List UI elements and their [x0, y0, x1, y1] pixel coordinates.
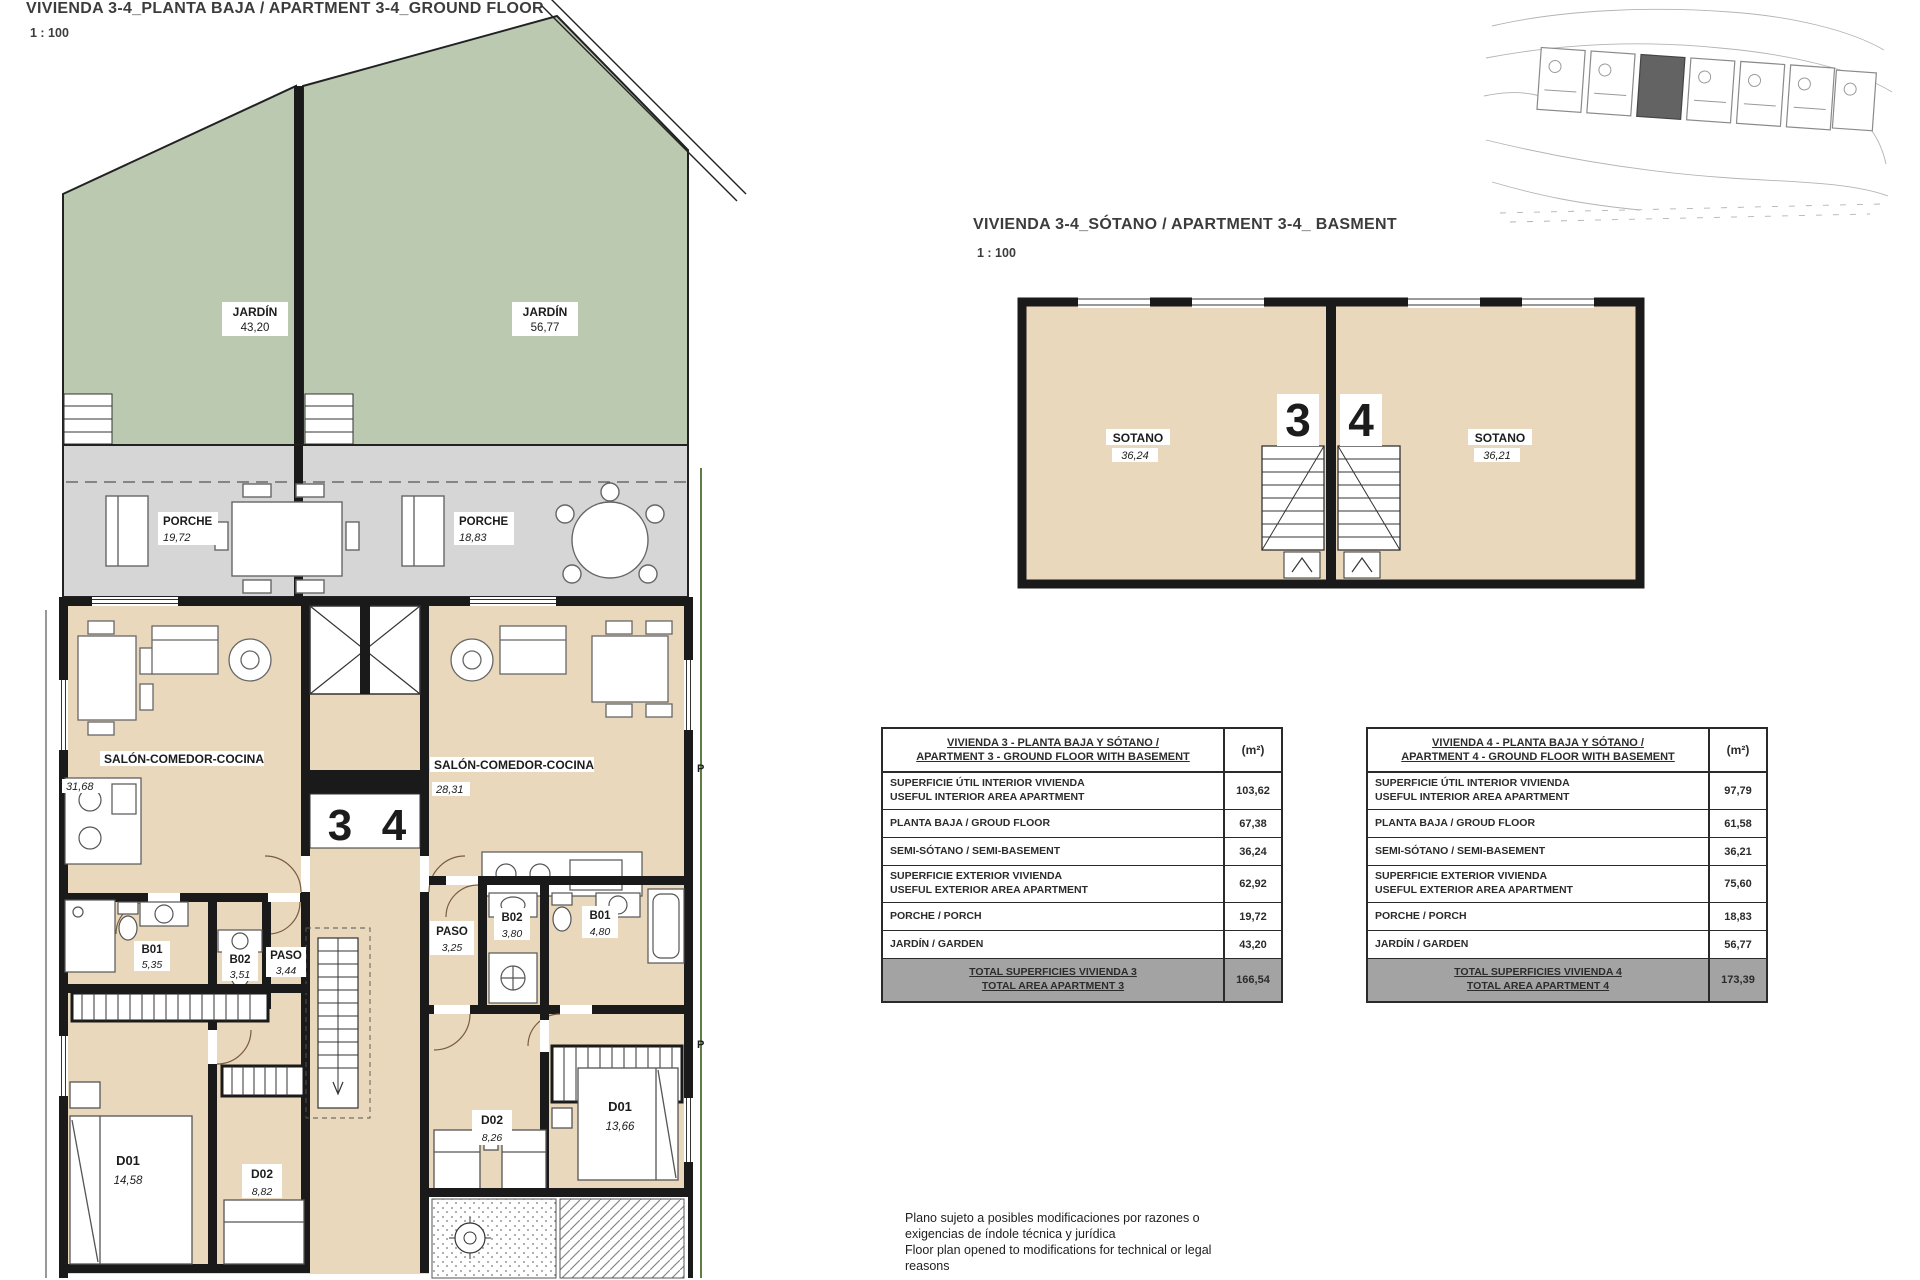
- table-row: JARDÍN / GARDEN 43,20: [883, 931, 1281, 959]
- basement-plan: 3 4 SOTANO 36,24 SOTANO 36,21: [1022, 296, 1640, 584]
- table-row: PLANTA BAJA / GROUD FLOOR 67,38: [883, 810, 1281, 838]
- table-row: JARDÍN / GARDEN 56,77: [1368, 931, 1766, 959]
- table-row: PORCHE / PORCH 19,72: [883, 903, 1281, 931]
- unit-number-4-ground: 4: [382, 801, 407, 850]
- room-area-b01-left: 5,35: [142, 959, 163, 971]
- area-table-apartment-4: VIVIENDA 4 - PLANTA BAJA Y SÓTANO / APAR…: [1366, 727, 1768, 1003]
- room-area-salon-right: 28,31: [435, 784, 464, 796]
- table4-unit-header: (m²): [1710, 729, 1766, 771]
- area-table-apartment-3: VIVIENDA 3 - PLANTA BAJA Y SÓTANO / APAR…: [881, 727, 1283, 1003]
- unit-number-3-ground: 3: [328, 801, 352, 850]
- table-row: SUPERFICIE ÚTIL INTERIOR VIVIENDAUSEFUL …: [883, 773, 1281, 810]
- table4-total-row: TOTAL SUPERFICIES VIVIENDA 4TOTAL AREA A…: [1368, 959, 1766, 1001]
- room-area-d02-left: 8,82: [252, 1186, 273, 1198]
- table4-title-line1: VIVIENDA 4 - PLANTA BAJA Y SÓTANO /: [1372, 736, 1704, 750]
- table4-title: VIVIENDA 4 - PLANTA BAJA Y SÓTANO / APAR…: [1368, 729, 1710, 771]
- room-area-b01-right: 4,80: [590, 926, 611, 938]
- room-area-b02-right: 3,80: [502, 928, 523, 940]
- room-area-porche-right: 18,83: [459, 532, 487, 544]
- table-row: SEMI-SÓTANO / SEMI-BASEMENT 36,24: [883, 838, 1281, 866]
- architectural-drawing: JARDÍN 43,20 JARDÍN 56,77: [0, 0, 1920, 1280]
- table-row: SEMI-SÓTANO / SEMI-BASEMENT 36,21: [1368, 838, 1766, 866]
- room-area-porche-left: 19,72: [163, 532, 191, 544]
- room-area-d01-left: 14,58: [114, 1175, 143, 1187]
- ground-floor-plan: JARDÍN 43,20 JARDÍN 56,77: [46, 0, 746, 1278]
- room-area-jardin-left: 43,20: [241, 322, 270, 334]
- unit-number-4-basement: 4: [1348, 394, 1374, 446]
- room-area-d02-right: 8,26: [482, 1132, 503, 1144]
- room-label-jardin-left: JARDÍN: [233, 304, 278, 319]
- room-label-paso-right: PASO: [436, 926, 468, 938]
- room-area-salon-left: 31,68: [66, 781, 94, 793]
- table-row: PLANTA BAJA / GROUD FLOOR 61,58: [1368, 810, 1766, 838]
- site-plan-minimap: [1484, 9, 1892, 222]
- room-label-porche-left: PORCHE: [163, 516, 213, 528]
- garden-areas: JARDÍN 43,20 JARDÍN 56,77: [63, 0, 746, 445]
- disclaimer-note: Plano sujeto a posibles modificaciones p…: [905, 1210, 1211, 1274]
- disclaimer-line-2: exigencias de índole técnica y jurídica: [905, 1226, 1211, 1242]
- room-label-sotano-left: SOTANO: [1113, 431, 1163, 445]
- room-area-paso-left: 3,44: [276, 965, 297, 977]
- room-label-porche-right: PORCHE: [459, 516, 509, 528]
- disclaimer-line-1: Plano sujeto a posibles modificaciones p…: [905, 1210, 1211, 1226]
- floor-plan-sheet: VIVIENDA 3-4_PLANTA BAJA / APARTMENT 3-4…: [0, 0, 1920, 1280]
- room-label-b01-right: B01: [589, 910, 611, 922]
- room-label-d01-left: D01: [116, 1153, 140, 1168]
- room-label-d02-right: D02: [481, 1113, 503, 1127]
- room-area-d01-right: 13,66: [606, 1121, 635, 1133]
- table3-title-line2: APARTMENT 3 - GROUND FLOOR WITH BASEMENT: [887, 750, 1219, 764]
- disclaimer-line-4: reasons: [905, 1258, 1211, 1274]
- room-label-paso-left: PASO: [270, 950, 302, 962]
- table3-title: VIVIENDA 3 - PLANTA BAJA Y SÓTANO / APAR…: [883, 729, 1225, 771]
- room-label-d02-left: D02: [251, 1167, 273, 1181]
- boundary-marker-p1: P: [697, 763, 704, 775]
- table3-title-line1: VIVIENDA 3 - PLANTA BAJA Y SÓTANO /: [887, 736, 1219, 750]
- minimap-highlighted-unit: [1637, 54, 1685, 119]
- room-label-sotano-right: SOTANO: [1475, 431, 1525, 445]
- table-row: SUPERFICIE ÚTIL INTERIOR VIVIENDAUSEFUL …: [1368, 773, 1766, 810]
- room-label-d01-right: D01: [608, 1099, 632, 1114]
- table-row: PORCHE / PORCH 18,83: [1368, 903, 1766, 931]
- unit-number-3-basement: 3: [1285, 394, 1311, 446]
- porch-areas: PORCHE 19,72 PORCHE 18,83: [63, 445, 688, 597]
- table-row: SUPERFICIE EXTERIOR VIVIENDAUSEFUL EXTER…: [883, 866, 1281, 903]
- room-label-b02-left: B02: [229, 954, 250, 966]
- room-area-sotano-right: 36,21: [1483, 450, 1511, 462]
- room-area-b02-left: 3,51: [230, 969, 250, 981]
- room-area-paso-right: 3,25: [442, 942, 463, 954]
- room-label-salon-right: SALÓN-COMEDOR-COCINA: [434, 757, 594, 772]
- room-label-b01-left: B01: [141, 944, 163, 956]
- table4-title-line2: APARTMENT 4 - GROUND FLOOR WITH BASEMENT: [1372, 750, 1704, 764]
- table3-total-row: TOTAL SUPERFICIES VIVIENDA 3TOTAL AREA A…: [883, 959, 1281, 1001]
- room-label-b02-right: B02: [501, 912, 522, 924]
- room-area-sotano-left: 36,24: [1121, 450, 1149, 462]
- disclaimer-line-3: Floor plan opened to modifications for t…: [905, 1242, 1211, 1258]
- room-label-salon-left: SALÓN-COMEDOR-COCINA: [104, 751, 264, 766]
- table-row: SUPERFICIE EXTERIOR VIVIENDAUSEFUL EXTER…: [1368, 866, 1766, 903]
- table3-unit-header: (m²): [1225, 729, 1281, 771]
- room-area-jardin-right: 56,77: [531, 322, 560, 334]
- boundary-marker-p2: P: [697, 1039, 704, 1051]
- room-label-jardin-right: JARDÍN: [523, 304, 568, 319]
